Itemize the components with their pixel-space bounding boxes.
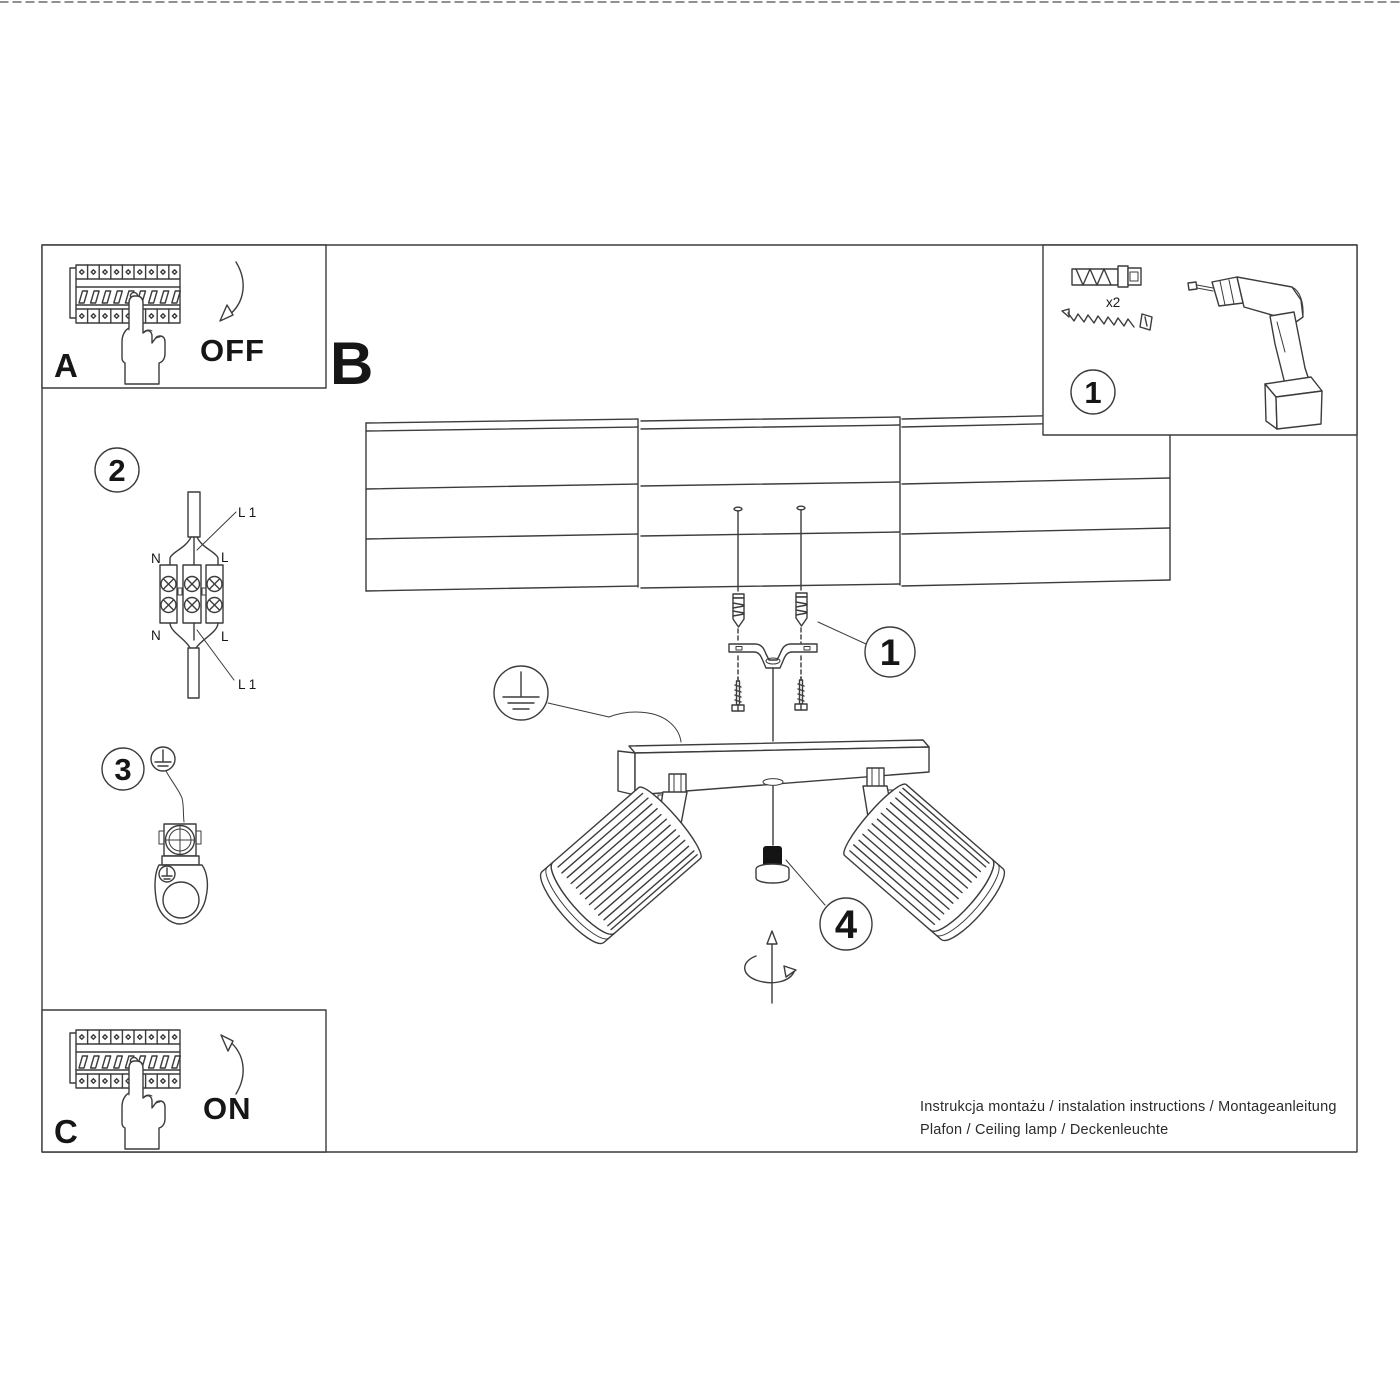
earth-connection-diagram: 3 [102, 747, 207, 924]
panel-b-letter: B [330, 330, 373, 397]
adjustment-knob [756, 846, 789, 883]
panel-a-power-off: A OFF [42, 245, 326, 388]
anchor-quantity-label: x2 [1106, 295, 1120, 310]
terminal-block [160, 565, 223, 623]
panel-a-state-off: OFF [200, 333, 265, 368]
parts-box-step-number: 1 [1084, 375, 1101, 410]
step1-number: 1 [880, 632, 901, 673]
wires-top [170, 537, 218, 565]
main-assembly-drawing: 1 [366, 413, 1170, 1003]
panel-a-letter: A [54, 347, 78, 384]
base-center-hole [763, 779, 783, 786]
wall-plug-right [796, 593, 807, 626]
wires-bottom [170, 623, 218, 648]
footer-line-2: Plafon / Ceiling lamp / Deckenleuchte [920, 1122, 1168, 1138]
n-top-label: N [151, 551, 161, 566]
earth-terminal [159, 824, 201, 856]
panel-c-state-on: ON [203, 1091, 252, 1126]
breaker-panel-drawing [70, 265, 180, 323]
wiring-diagram: 2 L 1 N L N L [95, 448, 256, 698]
lamp-holder-bracket [155, 856, 207, 924]
cable-sleeve-bottom [188, 648, 199, 698]
wall-plug-drawing [1072, 266, 1141, 287]
instruction-sheet: 1 [0, 0, 1400, 1400]
mounting-bracket [729, 644, 817, 668]
l1-top-label: L 1 [238, 505, 256, 520]
panel-c-power-on: C ON [42, 1010, 326, 1152]
l-bottom-label: L [221, 629, 229, 644]
alignment-dashes [738, 628, 801, 679]
wall-plug-left [733, 594, 744, 627]
earth-wire-small [166, 771, 184, 822]
cable-sleeve-top [188, 492, 200, 537]
step4-number: 4 [835, 903, 858, 947]
footer-line-1: Instrukcja montażu / instalation instruc… [920, 1099, 1337, 1115]
parts-and-tools-box: x2 1 [1043, 245, 1357, 435]
ceiling-screw-marks [734, 506, 805, 591]
l1-bottom-label: L 1 [238, 677, 256, 692]
step4-leader-line [786, 860, 825, 905]
earth-wire [609, 712, 681, 742]
step3-number: 3 [114, 752, 131, 787]
mounting-screw-left [732, 678, 744, 711]
rotation-arrow-icon [745, 931, 796, 1003]
breaker-panel-drawing [70, 1030, 180, 1088]
step1-leader-line [818, 622, 866, 644]
l1-top-leader [197, 512, 236, 550]
mounting-screw-right [795, 677, 807, 710]
step2-number: 2 [108, 453, 125, 488]
l-top-label: L [221, 550, 229, 565]
diagram-canvas: 1 [0, 0, 1400, 1400]
n-bottom-label: N [151, 628, 161, 643]
panel-c-letter: C [54, 1113, 78, 1150]
ground-symbol-icon [494, 666, 548, 720]
ground-symbol-small-icon [151, 747, 175, 771]
ceiling-planks [366, 413, 1170, 591]
ground-leader-line [548, 703, 609, 717]
